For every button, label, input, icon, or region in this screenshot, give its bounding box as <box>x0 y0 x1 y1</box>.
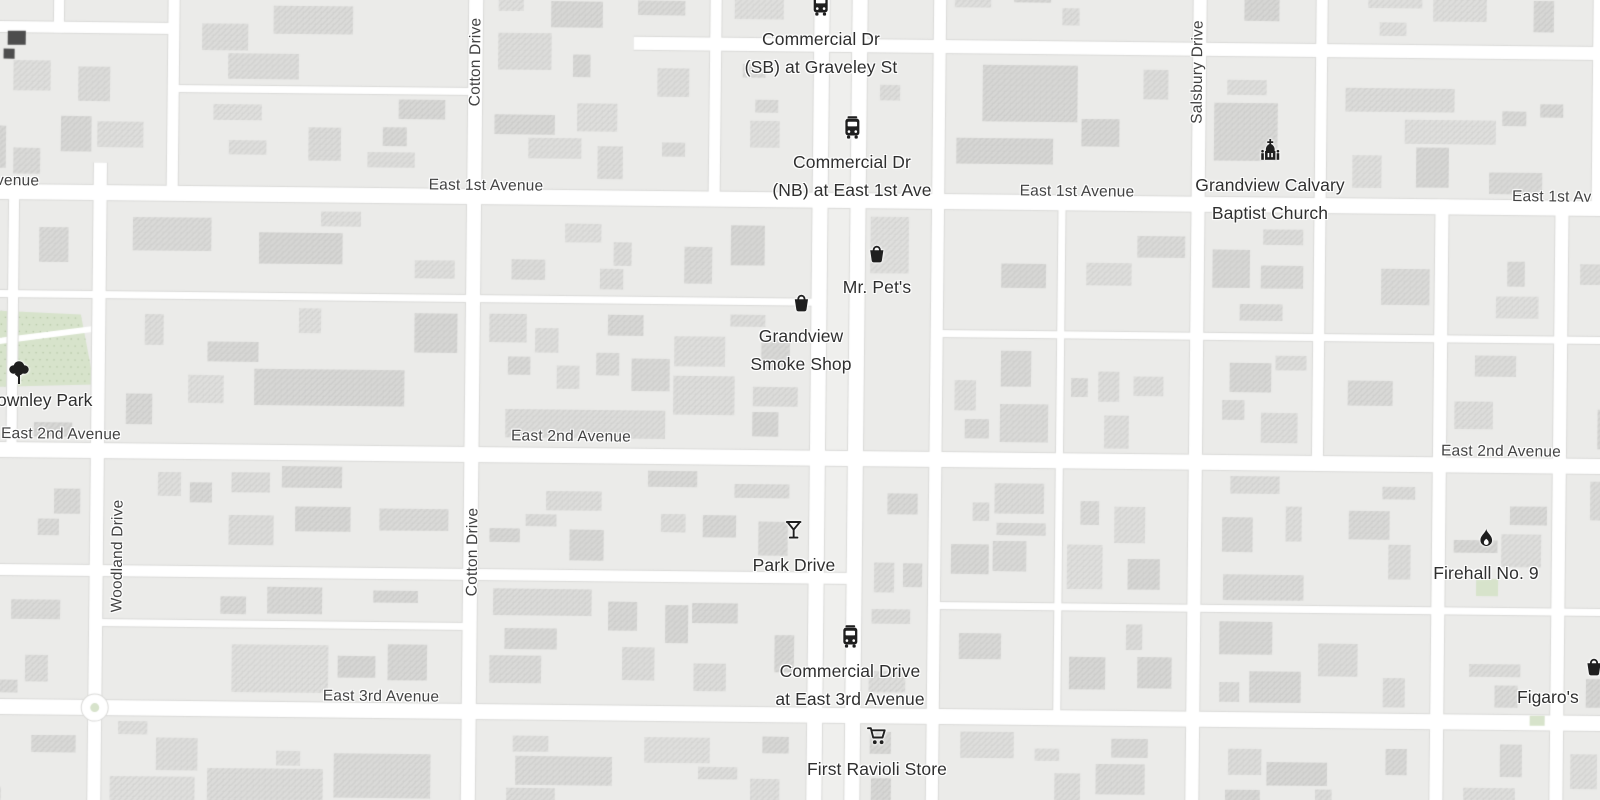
poi-grandview-calvary-baptist-church[interactable]: Grandview Calvary Baptist Church <box>1195 139 1345 227</box>
poi-figaros-label[interactable]: Figaro's <box>1517 683 1579 711</box>
poi-label: Grandview Calvary <box>1195 171 1345 199</box>
street-label-east-1st-avenue-partial: venue <box>0 172 39 190</box>
shopping-basket-icon <box>791 291 811 321</box>
poi-label: Mr. Pet's <box>843 273 911 301</box>
street-label-east-1st-avenue: East 1st Avenue <box>1020 182 1135 201</box>
flame-icon <box>1476 526 1496 558</box>
poi-label: (SB) at Graveley St <box>745 53 898 81</box>
poi-grandview-smoke-shop[interactable]: Grandview Smoke Shop <box>750 291 851 378</box>
bus-icon <box>842 116 862 147</box>
poi-label: Smoke Shop <box>750 350 851 378</box>
street-label-east-2nd-avenue: East 2nd Avenue <box>1441 442 1561 461</box>
poi-label: Commercial Dr <box>762 25 880 53</box>
poi-label: (NB) at East 1st Ave <box>772 176 931 204</box>
street-label-cotton-drive: Cotton Drive <box>464 508 483 597</box>
poi-bus-stop-commercial-nb-east1[interactable]: Commercial Dr (NB) at East 1st Ave <box>772 116 931 204</box>
poi-label: Commercial Dr <box>793 148 911 176</box>
street-label-east-3rd-avenue: East 3rd Avenue <box>323 687 440 706</box>
poi-label: Firehall No. 9 <box>1433 559 1538 587</box>
poi-label: Baptist Church <box>1212 199 1328 227</box>
bus-icon <box>840 625 860 656</box>
poi-label: Commercial Drive <box>780 657 921 685</box>
poi-park-label[interactable]: ownley Park <box>0 386 92 414</box>
street-label-woodland-drive: Woodland Drive <box>108 500 127 613</box>
poi-mr-pets[interactable]: Mr. Pet's <box>843 242 911 301</box>
poi-label: Grandview <box>759 322 844 350</box>
street-label-east-1st-avenue: East 1st Avenue <box>429 176 544 195</box>
map-canvas[interactable]: venue East 1st Avenue East 1st Avenue Ea… <box>0 0 1600 800</box>
street-label-east-2nd-avenue: East 2nd Avenue <box>1 425 121 444</box>
poi-label: First Ravioli Store <box>807 755 947 783</box>
poi-label: Park Drive <box>753 551 836 579</box>
poi-bus-stop-commercial-sb-graveley[interactable]: Commercial Dr (SB) at Graveley St <box>745 0 898 81</box>
shopping-cart-icon <box>867 726 888 754</box>
street-label-east-2nd-avenue: East 2nd Avenue <box>511 427 631 446</box>
street-label-cotton-drive: Cotton Drive <box>467 18 486 107</box>
poi-firehall-no-9[interactable]: Firehall No. 9 <box>1433 526 1538 587</box>
shopping-basket-icon <box>1584 655 1600 682</box>
poi-park-drive-bar[interactable]: Park Drive <box>753 518 836 579</box>
street-label-east-1st-avenue-clipped: East 1st Av <box>1512 188 1592 207</box>
poi-first-ravioli-store[interactable]: First Ravioli Store <box>807 726 947 783</box>
church-icon <box>1258 139 1282 170</box>
poi-label: at East 3rd Avenue <box>775 685 924 713</box>
shopping-basket-icon <box>867 242 887 272</box>
street-label-salsbury-drive: Salsbury Drive <box>1188 20 1207 124</box>
bus-icon <box>811 0 831 24</box>
poi-bus-stop-commercial-east3[interactable]: Commercial Drive at East 3rd Avenue <box>775 625 924 713</box>
cocktail-icon <box>785 518 803 550</box>
